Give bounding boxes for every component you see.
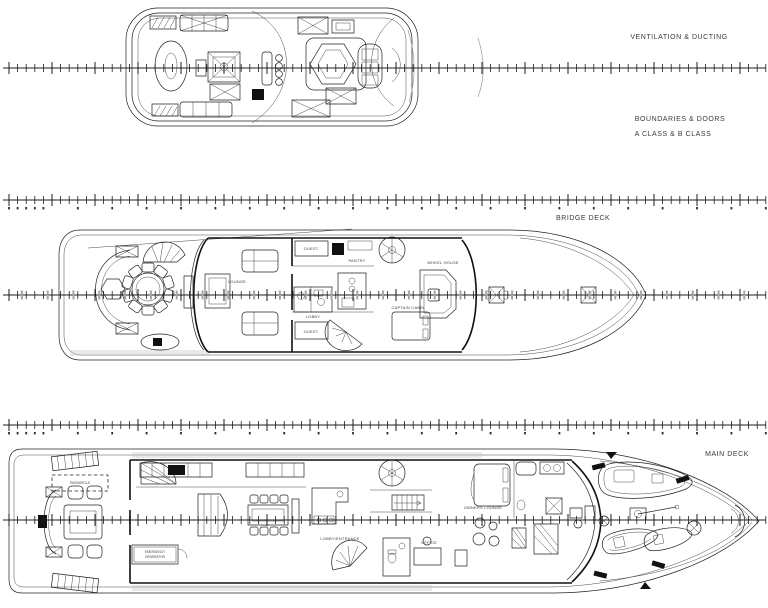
tender-small-1: [600, 523, 660, 556]
aft-fan-stair: [143, 242, 185, 262]
owners-bathroom: [514, 460, 564, 554]
lobby-entrance-label: LOBBY/ENTRANCE: [320, 536, 359, 541]
sun-deck-plan: [126, 8, 483, 126]
galley-counters: [136, 463, 306, 487]
emergency-generator-label-1: EMERGENCY: [145, 550, 166, 554]
transom-stairs: [51, 451, 98, 593]
main-deck-label: MAIN DECK: [705, 451, 749, 458]
bridge-deck-label: BRIDGE DECK: [556, 215, 610, 222]
boundaries-note-line1: BOUNDARIES & DOORS: [635, 116, 725, 123]
ventilation-note: VENTILATION & DUCTING: [630, 34, 727, 41]
hex-table: [101, 279, 125, 299]
main-deck-plan: [9, 449, 759, 593]
passarelle-label: PASSARELLE: [70, 481, 91, 485]
dining-table: [248, 495, 299, 535]
aft-oval-seat: [155, 41, 187, 91]
lobby-stair: [332, 540, 367, 570]
sun-loungers-bottom: [152, 100, 330, 117]
boundaries-note-line2: A CLASS & B CLASS: [635, 131, 712, 138]
day-head: [383, 538, 410, 576]
ga-drawing-sheet: VENTILATION & DUCTING BOUNDARIES & DOORS…: [0, 0, 768, 608]
owners-bed: [471, 464, 510, 506]
guest-fwd-label: GUEST: [304, 246, 319, 251]
guest-aft-label: GUEST: [304, 329, 319, 334]
galley-island: [312, 488, 348, 524]
lobby-label: LOBBY: [306, 314, 320, 319]
ga-plan-canvas: VENTILATION & DUCTING BOUNDARIES & DOORS…: [0, 0, 768, 608]
spiral-stair-fwd: [379, 237, 405, 263]
office-label: OFFICE: [421, 540, 437, 545]
helm-console: [420, 270, 456, 318]
owners-lounge-label: OWNERS LOUNGE: [464, 505, 503, 510]
round-dining-table: [121, 263, 174, 315]
corridor-stairs: [392, 495, 424, 510]
aft-deck-seating: [38, 486, 102, 558]
windlass: [570, 506, 609, 528]
owners-lounge-furniture: [455, 518, 526, 566]
pantry-label: PANTRY: [348, 258, 365, 263]
spiral-stair-main: [379, 460, 405, 486]
lounge-label: LOUNGE: [228, 279, 246, 284]
tender-small-2: [642, 523, 694, 553]
wheelhouse-label: WHEEL HOUSE: [427, 260, 459, 265]
spiral-stair-aft: [325, 320, 362, 351]
captain-cabin-label: CAPTAIN CABIN: [392, 305, 425, 310]
salon-cabinet: [198, 494, 228, 536]
bar-counter: [252, 52, 282, 100]
mast-crane: [196, 52, 240, 100]
emergency-generator-label-2: GENERATOR: [145, 555, 166, 559]
